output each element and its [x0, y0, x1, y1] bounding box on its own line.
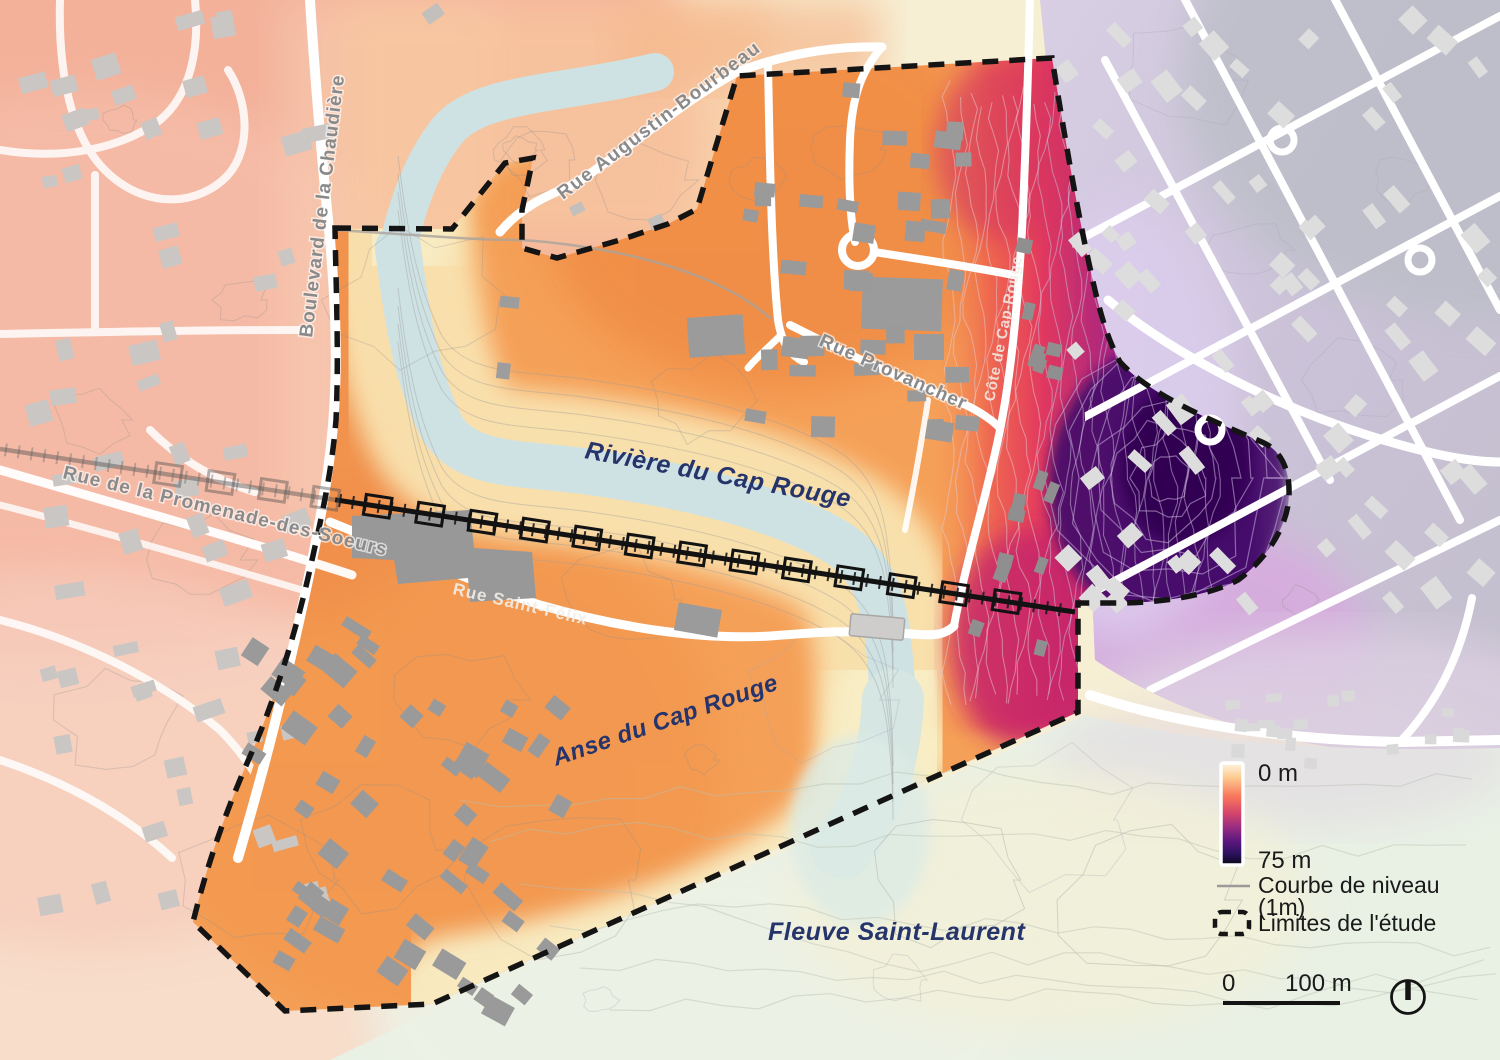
scale-bar-start-label: 0	[1222, 970, 1235, 997]
legend-elevation-max-label: 75 m	[1258, 847, 1311, 874]
legend-study-limits-label: Limites de l'étude	[1258, 910, 1436, 936]
map-canvas: Boulevard de la Chaudière Rue de la Prom…	[0, 0, 1500, 1060]
label-fleuve-saint-laurent: Fleuve Saint-Laurent	[768, 918, 1026, 946]
elevation-gradient-bar	[1221, 763, 1243, 865]
legend-elevation-min-label: 0 m	[1258, 760, 1298, 787]
map-root: Boulevard de la Chaudière Rue de la Prom…	[0, 0, 1500, 1060]
bridge-shape	[849, 614, 905, 641]
scale-bar-end-label: 100 m	[1285, 970, 1352, 997]
